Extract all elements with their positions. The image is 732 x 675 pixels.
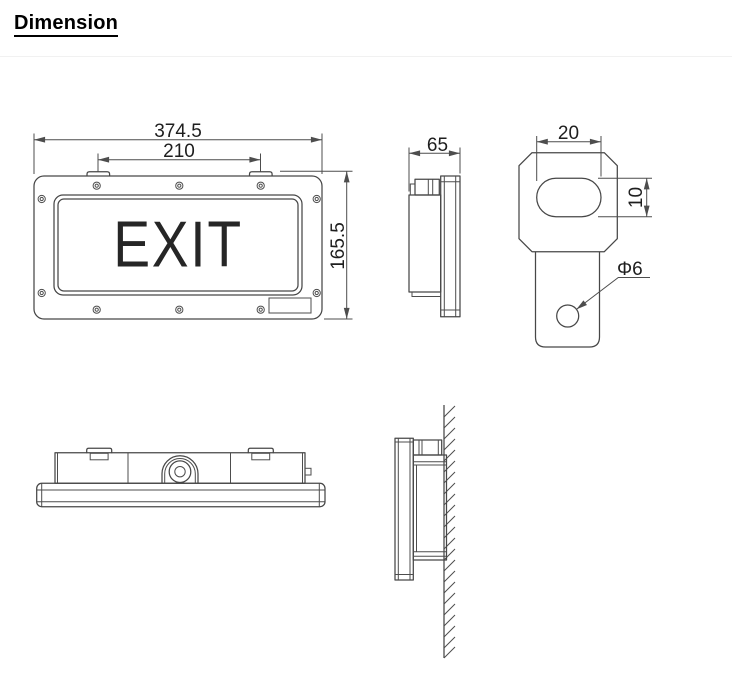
side-body-top-lip: [410, 184, 415, 195]
top-front-frame: [37, 483, 325, 506]
dim-hole-diameter: Φ6: [576, 259, 650, 309]
dim-overall-height-value: 165.5: [328, 222, 349, 270]
side-view: 65: [409, 135, 460, 317]
side-front-frame: [441, 176, 460, 317]
side-terminal-box: [415, 179, 439, 195]
label-plate: [269, 298, 311, 313]
side-body-bottom-lip: [412, 292, 441, 297]
side-terminal-box-detail: [428, 179, 432, 195]
top-mounting-tab-right: [248, 448, 273, 460]
bracket-head-outline: [519, 153, 617, 252]
bracket-hole: [557, 305, 579, 327]
top-mounting-tab-left: [87, 448, 112, 460]
drawing-sheet: Dimension: [0, 0, 732, 675]
dim-slot-height: 10: [598, 178, 652, 216]
wall-body: [413, 455, 446, 560]
wall-front-frame-lines: [395, 438, 413, 580]
top-front-frame-lines: [37, 483, 325, 506]
wall-view: [395, 405, 455, 658]
wall-hatching: [444, 406, 455, 658]
top-view: [37, 448, 325, 506]
wall-front-frame: [395, 438, 413, 580]
dim-hole-diameter-value: Φ6: [617, 259, 643, 280]
dim-slot-width-value: 20: [558, 123, 579, 144]
side-frame-bevel-lines: [441, 176, 460, 317]
dimension-drawing: EXIT 374.5 210 165.5: [0, 0, 732, 675]
dim-mount-spacing: 210: [98, 141, 261, 172]
front-view: EXIT 374.5 210 165.5: [34, 121, 353, 319]
bracket-view: 20 10 Φ6: [519, 123, 652, 347]
top-body-edge-lines: [58, 453, 303, 484]
wall-terminal-box: [413, 440, 441, 455]
dim-overall-width-value: 374.5: [154, 121, 202, 142]
dim-depth-value: 65: [427, 135, 448, 156]
top-side-notch: [305, 468, 311, 475]
dim-depth: 65: [409, 135, 460, 192]
wall-body-lines: [413, 462, 446, 557]
cable-gland: [162, 456, 198, 484]
dim-slot-height-value: 10: [626, 187, 647, 208]
exit-sign-text: EXIT: [113, 207, 243, 280]
bracket-slot: [537, 178, 601, 216]
wall-terminal-box-detail: [419, 440, 438, 455]
top-body: [55, 453, 305, 484]
side-body: [409, 195, 441, 292]
dim-slot-width: 20: [537, 123, 601, 181]
dim-mount-spacing-value: 210: [163, 141, 195, 162]
